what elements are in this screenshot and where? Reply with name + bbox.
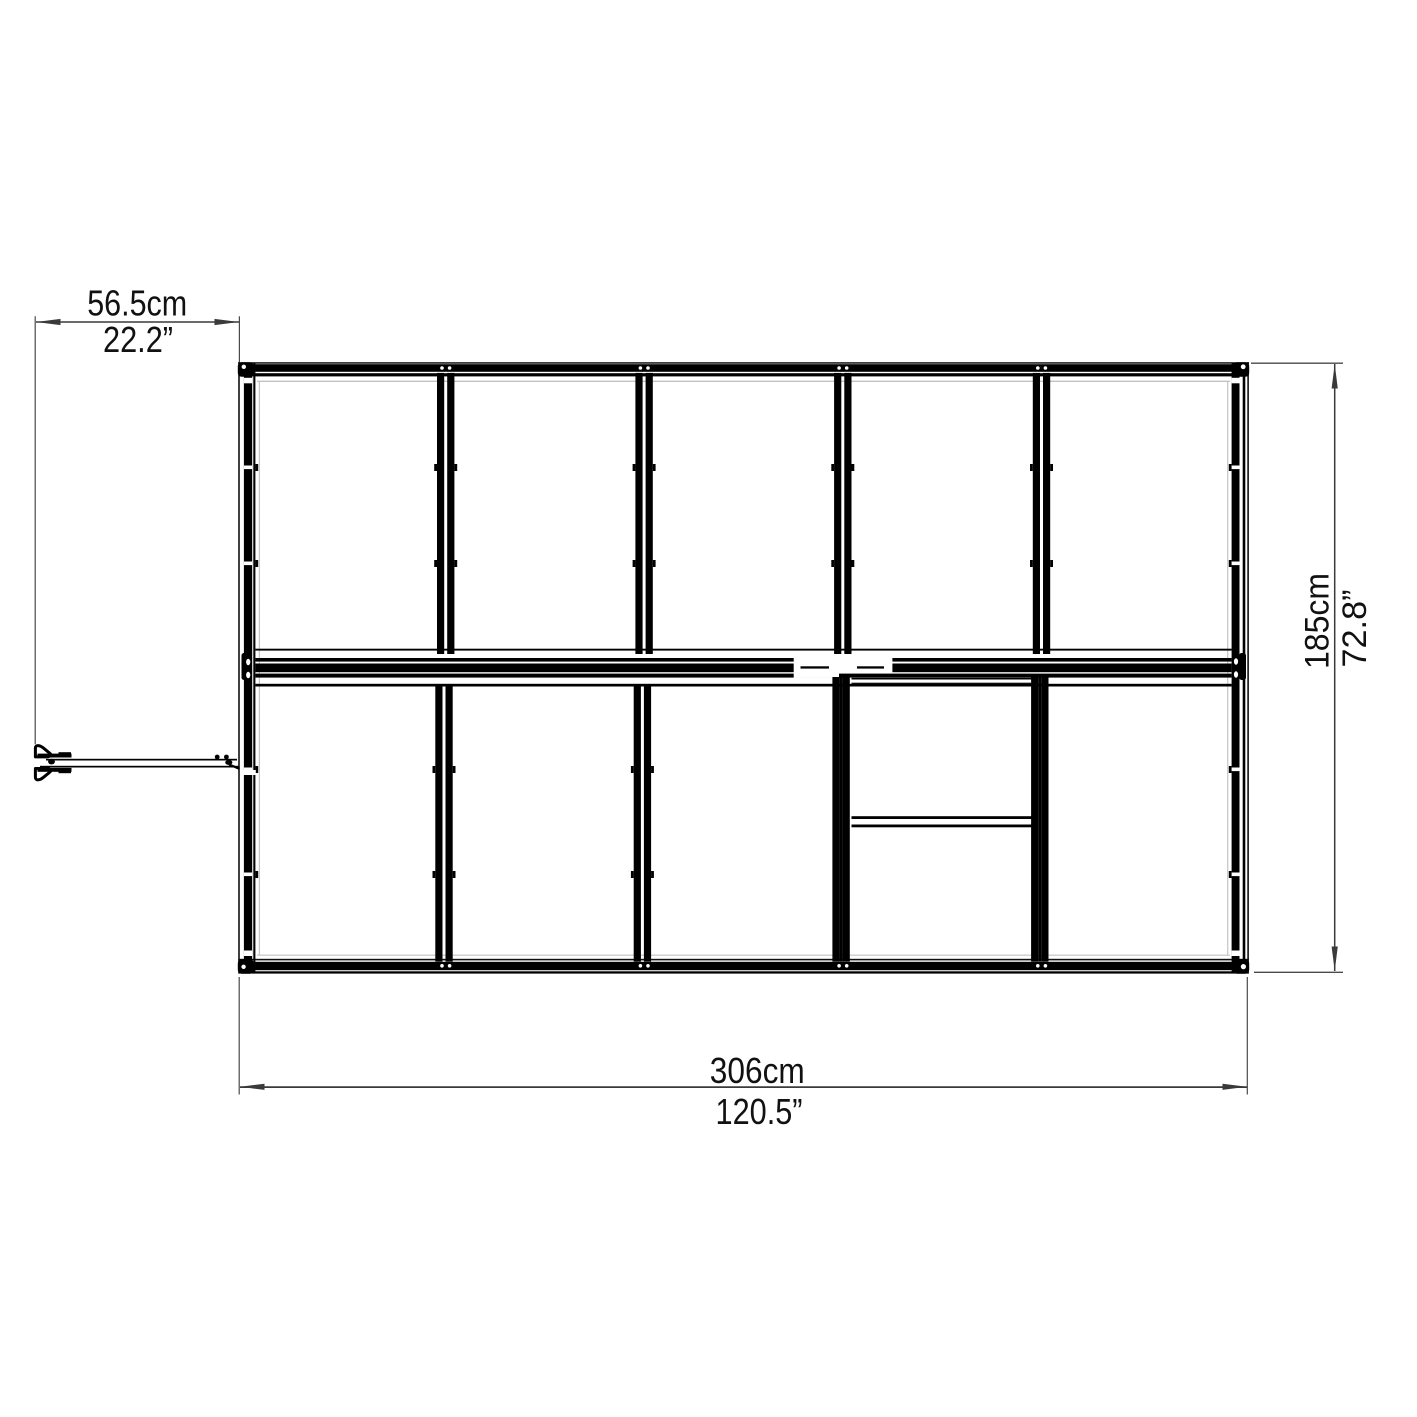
svg-text:185cm: 185cm — [1299, 573, 1337, 669]
svg-text:306cm: 306cm — [710, 1050, 805, 1091]
svg-text:56.5cm: 56.5cm — [87, 283, 187, 324]
svg-text:22.2”: 22.2” — [103, 319, 173, 360]
svg-text:120.5”: 120.5” — [716, 1091, 803, 1132]
svg-text:72.8”: 72.8” — [1336, 590, 1374, 668]
